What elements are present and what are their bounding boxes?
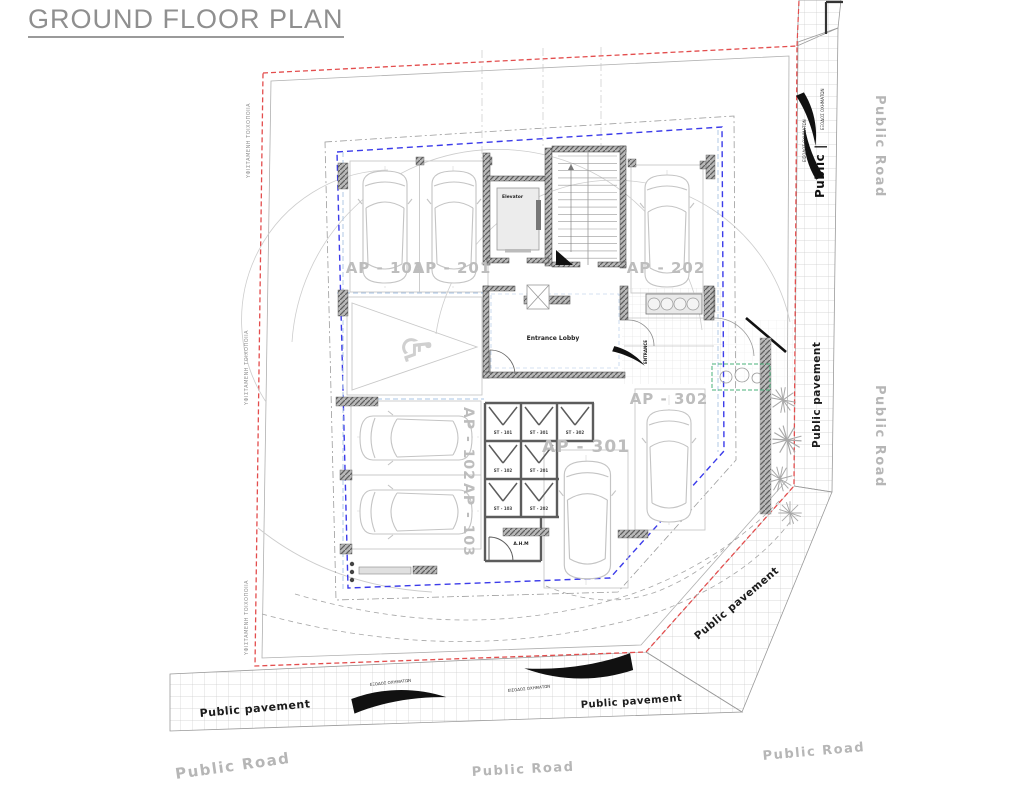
st-301-label: ST - 301 (530, 430, 549, 435)
public-pavement-label-right: Public pavement (811, 342, 823, 448)
public-label-truncated: Public | (813, 144, 827, 198)
masonry-labels: ΥΦΙΣΤΑΜΕΝΗ ΤΟΙΧΟΠΟΙΙΑ ΥΦΙΣΤΑΜΕΝΗ ΤΟΙΧΟΠΟ… (244, 103, 252, 656)
vehicle-entry-label-right: ΕΙΣΟΔΟΣ ΟΧΗΜΑΤΩΝ (802, 119, 807, 162)
car (360, 485, 472, 539)
st-201-label: ST - 201 (530, 468, 549, 473)
elevator-counterweight (536, 200, 541, 230)
existing-masonry-label: ΥΦΙΣΤΑΜΕΝΗ ΤΟΙΧΟΠΟΙΙΑ (244, 330, 250, 406)
ap-301-label: AP - 301 (542, 437, 630, 457)
entrance-planter (646, 294, 702, 314)
x-box (527, 285, 549, 309)
public-road-label-bottom-center: Public Road (471, 760, 574, 780)
existing-masonry-label: ΥΦΙΣΤΑΜΕΝΗ ΤΟΙΧΟΠΟΙΙΑ (246, 103, 252, 179)
car (559, 461, 616, 579)
ap-202-label: AP - 202 (627, 259, 706, 277)
floor-plan-page: GROUND FLOOR PLAN (0, 0, 1024, 787)
ap-102-label: AP - 102 (460, 407, 476, 481)
ap-302-label: AP - 302 (630, 390, 709, 408)
elevator-label: Elevator (502, 194, 524, 200)
car (642, 410, 696, 522)
public-road-label-right-top: Public Road (872, 95, 887, 198)
public-road-label-right-mid: Public Road (872, 385, 887, 488)
public-road-label-bottom-right: Public Road (762, 740, 866, 764)
vehicle-exit-label-right: ΕΞΟΔΟΣ ΟΧΗΜΑΤΩΝ (820, 89, 825, 130)
st-103-label: ST - 103 (494, 506, 513, 511)
public-road-label-bottom-left: Public Road (174, 749, 291, 783)
ahm-label: A.H.M (513, 541, 529, 547)
st-102-label: ST - 102 (494, 468, 513, 473)
wheelchair-icon: ♿ (392, 332, 438, 368)
ap-201-label: AP - 201 (413, 259, 492, 277)
st-101-label: ST - 101 (494, 430, 513, 435)
entrance-lobby-label: Entrance Lobby (527, 335, 580, 342)
elevator-door (505, 249, 531, 253)
st-302-label: ST - 302 (566, 430, 585, 435)
ap-103-label: AP - 103 (460, 483, 476, 557)
st-202-label: ST - 202 (530, 506, 549, 511)
entrance-label: ENTRANCE (643, 340, 648, 364)
site-plan-drawing: ♿ (0, 0, 1024, 787)
existing-masonry-label: ΥΦΙΣΤΑΜΕΝΗ ΤΟΙΧΟΠΟΙΙΑ (244, 580, 250, 656)
car (360, 411, 472, 465)
